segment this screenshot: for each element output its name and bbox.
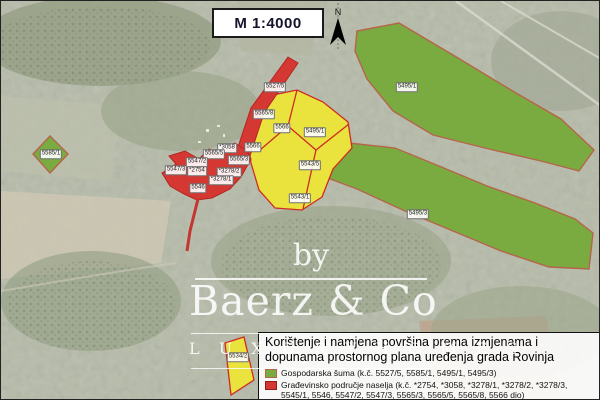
settlement-swatch-icon <box>265 381 277 390</box>
legend-title-line2: dopunama prostornog plana uređenja grada… <box>265 350 597 365</box>
map-scale-box: M 1:4000 <box>212 8 324 38</box>
legend-title-line1: Korištenje i namjena površina prema izmj… <box>265 335 597 350</box>
legend-item-forest: Gospodarska šuma (k.č. 5527/5, 5585/1, 5… <box>265 368 597 378</box>
north-arrow-icon: N <box>327 3 349 51</box>
legend-item-settlement: Građevinsko područje naselja (k.č. *2754… <box>265 380 597 400</box>
forest-swatch-icon <box>265 369 277 378</box>
legend-item-label: Građevinsko područje naselja (k.č. *2754… <box>281 380 597 400</box>
legend-item-label: Gospodarska šuma (k.č. 5527/5, 5585/1, 5… <box>281 368 496 378</box>
north-label: N <box>335 7 342 17</box>
legend-panel: Korištenje i namjena površina prema izmj… <box>258 332 600 400</box>
map-canvas: 5527/55565/855665495/15566*30585565/5556… <box>0 0 600 400</box>
map-scale-label: M 1:4000 <box>234 15 301 32</box>
